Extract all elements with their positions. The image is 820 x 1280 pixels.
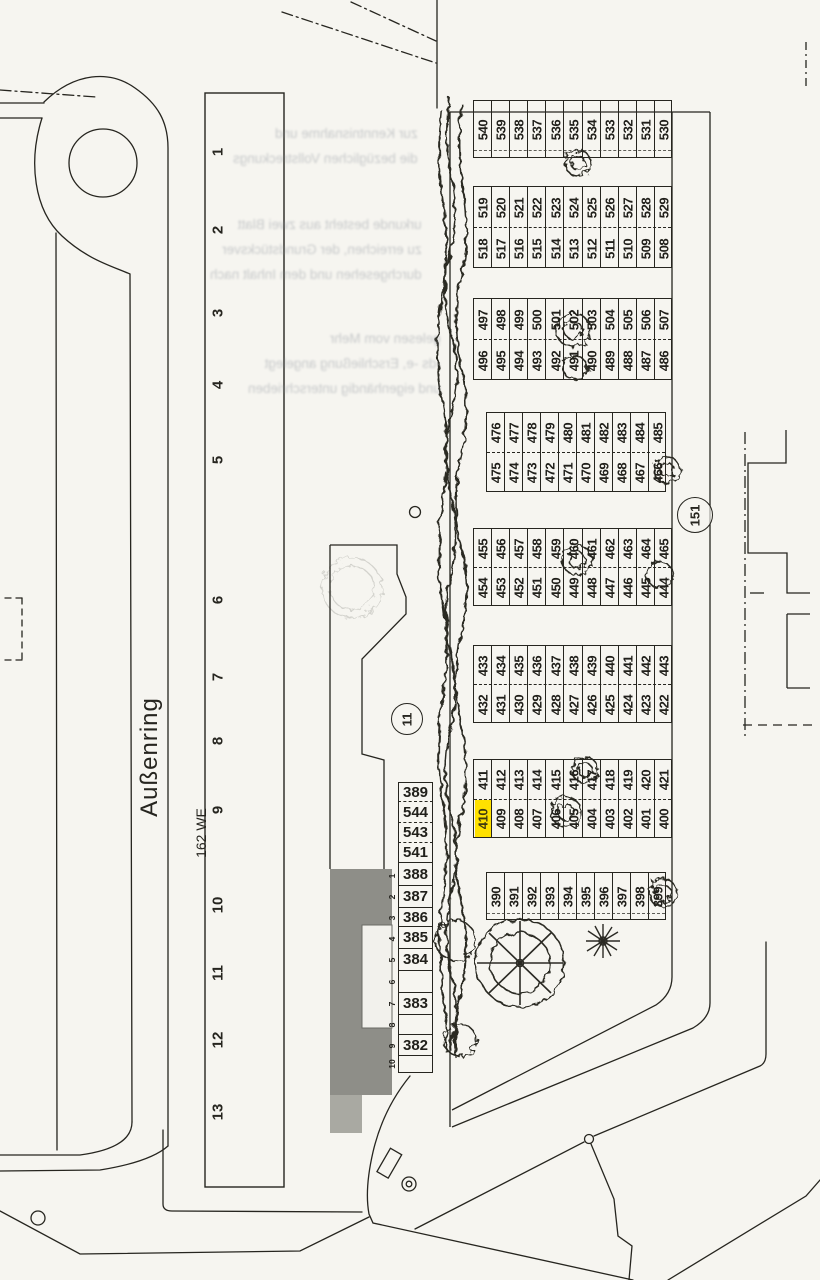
stall-number: 469	[597, 463, 612, 484]
stall-number: 404	[584, 809, 599, 830]
side-stall-number: 386	[403, 909, 428, 926]
stall-number: 464	[639, 538, 654, 559]
stall-number: 449	[566, 577, 581, 598]
stall-number: 473	[525, 463, 540, 484]
side-column-tick: 1	[387, 874, 397, 879]
parking-band: 5195205215225235245255265275285295185175…	[473, 186, 672, 268]
stall-number: 393	[543, 887, 558, 908]
stall-number: 487	[639, 350, 654, 371]
stall-number: 414	[530, 770, 545, 791]
stall-number: 520	[494, 197, 509, 218]
stall-number: 403	[602, 809, 617, 830]
parcel-line-ne	[594, 942, 766, 1136]
stall-number: 485	[651, 423, 666, 444]
parking-band: 390391392393394395396397398399	[486, 872, 666, 920]
stall-number: 528	[639, 197, 654, 218]
stall-number: 479	[543, 423, 558, 444]
stall-number: 398	[633, 887, 648, 908]
stall-front-dashed-line	[474, 150, 671, 151]
side-column-tick: 4	[387, 937, 397, 942]
side-stall-cell: 382	[398, 1035, 433, 1056]
stall-number: 400	[657, 809, 672, 830]
stall-number: 536	[548, 120, 563, 141]
stall-number: 495	[494, 350, 509, 371]
stall-number: 458	[530, 538, 545, 559]
stall-number: 413	[512, 770, 527, 791]
side-stall-cell: 388	[398, 863, 433, 886]
side-stall-cell: 383	[398, 993, 433, 1015]
stall-number: 438	[566, 655, 581, 676]
stall-number: 477	[507, 423, 522, 444]
side-column-tick: 5	[387, 958, 397, 963]
stall-number: 501	[548, 309, 563, 330]
side-column-tick: 10	[387, 1059, 397, 1068]
stall-number: 538	[512, 120, 527, 141]
stall-number: 465	[657, 538, 672, 559]
stall-number: 527	[620, 197, 635, 218]
side-stall-cell: 384	[398, 949, 433, 971]
stall-number: 457	[512, 538, 527, 559]
stall-number: 524	[566, 197, 581, 218]
building-unit-number: 4	[210, 381, 227, 389]
stall-number: 392	[525, 887, 540, 908]
circled-label-151-text: 151	[687, 504, 702, 526]
stall-number: 437	[548, 655, 563, 676]
stall-number: 491	[566, 350, 581, 371]
stall-number: 431	[494, 694, 509, 715]
building-unit-number: 9	[210, 806, 227, 814]
stall-number: 456	[494, 538, 509, 559]
manhole-double-circle-inner	[406, 1181, 412, 1187]
stall-number: 540	[476, 120, 491, 141]
stall-number: 390	[489, 887, 504, 908]
stall-number: 535	[566, 120, 581, 141]
stall-number: 409	[494, 809, 509, 830]
stamp-ghost	[322, 558, 382, 618]
building-unit-number: 10	[210, 897, 227, 914]
stall-number: 512	[584, 238, 599, 259]
stall-number: 421	[657, 770, 672, 791]
stall-number: 406	[548, 809, 563, 830]
stall-facing-line	[487, 452, 665, 453]
stall-number: 427	[566, 694, 581, 715]
stall-number: 460	[566, 538, 581, 559]
stall-number: 513	[566, 238, 581, 259]
side-stall-number: 541	[403, 844, 428, 861]
side-stall-cell: 544	[398, 802, 433, 823]
stall-number: 516	[512, 238, 527, 259]
stall-number: 394	[561, 887, 576, 908]
side-stall-cell-empty	[398, 1015, 433, 1035]
stall-number: 531	[639, 120, 654, 141]
stall-number: 514	[548, 238, 563, 259]
stall-number: 399	[651, 887, 666, 908]
stall-number: 517	[494, 238, 509, 259]
ghost-text-block-1: zur Kenntnisnahme unddie bezüglichen Vol…	[233, 121, 418, 171]
stall-number: 396	[597, 887, 612, 908]
stall-number: 443	[657, 655, 672, 676]
stall-number: 434	[494, 655, 509, 676]
stall-number: 486	[657, 350, 672, 371]
side-stall-cell: 385	[398, 927, 433, 949]
site-plan-scan: Außenring 162 WE 11 151 5405395385375365…	[0, 0, 820, 1280]
boundary-dashdot-2	[282, 12, 436, 63]
road-junction-lower	[0, 1146, 168, 1171]
stall-number: 502	[566, 309, 581, 330]
stall-number: 509	[639, 238, 654, 259]
sign-structure	[377, 1148, 402, 1178]
stall-number: 459	[548, 538, 563, 559]
circled-label-11-text: 11	[400, 712, 415, 726]
boundary-dashdot-topleft	[0, 90, 96, 97]
stall-number: 496	[476, 350, 491, 371]
stall-number: 508	[657, 238, 672, 259]
stall-number: 474	[507, 463, 522, 484]
stall-number: 521	[512, 197, 527, 218]
parking-band: 540539538537536535534533532531530	[473, 100, 672, 158]
side-stall-number: 382	[403, 1037, 428, 1054]
stall-number: 515	[530, 238, 545, 259]
stall-number: 447	[602, 577, 617, 598]
enclosure-bottom	[163, 1130, 362, 1212]
stall-number: 472	[543, 463, 558, 484]
stall-number: 402	[620, 809, 635, 830]
side-stall-number: 385	[403, 929, 428, 946]
stall-facing-line	[474, 339, 671, 340]
stall-number: 395	[579, 887, 594, 908]
building-unit-number: 13	[210, 1104, 227, 1121]
stall-number: 470	[579, 463, 594, 484]
stall-facing-line	[474, 799, 671, 800]
stall-number: 489	[602, 350, 617, 371]
side-column-tick: 6	[387, 980, 397, 985]
building-unit-number: 11	[210, 965, 227, 981]
stall-number: 436	[530, 655, 545, 676]
stall-number: 533	[602, 120, 617, 141]
side-stall-number: 388	[403, 866, 428, 883]
side-stall-cell: 541	[398, 843, 433, 863]
side-stall-number: 387	[403, 888, 428, 905]
building-unit-number: 7	[210, 673, 227, 681]
stall-number: 497	[476, 309, 491, 330]
area-units-label: 162 WE	[193, 808, 209, 858]
stall-number: 418	[602, 770, 617, 791]
vegetation-strip	[438, 98, 467, 1058]
large-tree	[476, 919, 564, 1007]
parking-band: 4554564574584594604614624634644654544534…	[473, 528, 672, 606]
road-junction-upper	[0, 1122, 132, 1155]
stall-number: 417	[584, 770, 599, 791]
side-column-tick: 7	[387, 1002, 397, 1007]
side-stall-number: 383	[403, 995, 428, 1012]
stall-number: 444	[657, 577, 672, 598]
south-boundary	[0, 1211, 369, 1254]
stall-number: 534	[584, 120, 599, 141]
ghost-text-block-2: urkunde besteht aus zwei Blattzu erreich…	[210, 212, 422, 287]
stall-number: 420	[639, 770, 654, 791]
stall-number: 419	[620, 770, 635, 791]
stall-facing-line	[474, 567, 671, 568]
stall-number: 481	[579, 423, 594, 444]
building-unit-number: 1	[210, 148, 227, 156]
stall-number: 500	[530, 309, 545, 330]
street-name-label: Außenring	[136, 697, 164, 817]
stall-number: 525	[584, 197, 599, 218]
small-circle-marker	[410, 507, 421, 518]
stall-number: 416	[566, 770, 581, 791]
stall-number: 519	[476, 197, 491, 218]
stall-number: 440	[602, 655, 617, 676]
stall-number: 439	[584, 655, 599, 676]
stall-number: 441	[620, 655, 635, 676]
stall-number: 461	[584, 538, 599, 559]
stall-number: 475	[489, 463, 504, 484]
parking-band: 4114124134144154164174184194204214104094…	[473, 759, 672, 838]
stall-number: 463	[620, 538, 635, 559]
circled-label-11: 11	[391, 703, 423, 735]
stall-number: 407	[530, 809, 545, 830]
stall-number: 510	[620, 238, 635, 259]
boundary-dashdot-1	[351, 2, 436, 41]
stall-number: 522	[530, 197, 545, 218]
stall-number: 411	[476, 770, 491, 790]
stall-number: 480	[561, 423, 576, 444]
stall-number: 415	[548, 770, 563, 791]
stall-number: 498	[494, 309, 509, 330]
stall-number: 493	[530, 350, 545, 371]
side-stall-cell-empty	[398, 971, 433, 993]
stall-number: 428	[548, 694, 563, 715]
side-stall-cell: 387	[398, 886, 433, 908]
stall-number: 504	[602, 309, 617, 330]
stall-number: 425	[602, 694, 617, 715]
side-stall-cell: 543	[398, 823, 433, 843]
stall-number: 412	[494, 770, 509, 791]
stall-number: 506	[639, 309, 654, 330]
stall-number: 405	[566, 809, 581, 830]
stall-number: 451	[530, 577, 545, 598]
building-unit-number: 12	[210, 1032, 227, 1049]
building-unit-number: 5	[210, 456, 227, 464]
circled-label-151: 151	[677, 497, 713, 533]
stall-number: 408	[512, 809, 527, 830]
parcel-line-sw	[415, 1142, 584, 1229]
side-stall-number: 544	[403, 804, 428, 821]
lawn-boundary-line	[56, 233, 57, 1150]
stall-number: 446	[620, 577, 635, 598]
stall-number: 401	[639, 809, 654, 830]
stall-number: 478	[525, 423, 540, 444]
stall-number: 391	[507, 887, 522, 908]
highlighted-stall-number: 410	[476, 809, 491, 830]
stall-number: 422	[657, 694, 672, 715]
turning-circle-outer-west	[35, 118, 132, 1122]
stall-number: 424	[620, 694, 635, 715]
neighbour-structures-east	[743, 42, 812, 740]
stall-number: 423	[639, 694, 654, 715]
stall-number: 426	[584, 694, 599, 715]
stall-number: 435	[512, 655, 527, 676]
stall-number: 526	[602, 197, 617, 218]
stall-number: 468	[615, 463, 630, 484]
parking-band: 4974984995005015025035045055065074964954…	[473, 298, 672, 380]
stall-number: 484	[633, 423, 648, 444]
parking-band: 4334344354364374384394404414424434324314…	[473, 645, 672, 723]
dashed-fragment-west	[0, 598, 22, 660]
parcel-line-se-corner	[668, 1180, 820, 1280]
side-stall-number: 543	[403, 824, 428, 841]
parking-side-column: 389544543541388387386385384383382	[398, 782, 433, 1073]
small-tree-starburst	[586, 924, 620, 958]
road-linework	[0, 0, 820, 1280]
stall-number: 537	[530, 120, 545, 141]
plan-linework	[0, 0, 820, 1280]
stall-number: 505	[620, 309, 635, 330]
stall-number: 471	[561, 463, 576, 484]
stall-number: 448	[584, 577, 599, 598]
building-unit-number: 6	[210, 596, 227, 604]
stall-number: 432	[476, 694, 491, 715]
side-column-tick: 2	[387, 895, 397, 900]
stall-number: 397	[615, 887, 630, 908]
stall-number: 482	[597, 423, 612, 444]
stall-number: 530	[657, 120, 672, 141]
side-column-tick: 8	[387, 1023, 397, 1028]
gray-building-tail	[330, 1095, 362, 1133]
stall-number: 488	[620, 350, 635, 371]
stall-number: 511	[602, 239, 617, 259]
stall-number: 518	[476, 238, 491, 259]
building-unit-number: 8	[210, 737, 227, 745]
stall-number: 492	[548, 350, 563, 371]
stall-number: 455	[476, 538, 491, 559]
ghost-text-block-3: gelesen vom Mehr-ds -e, Erschließung ang…	[248, 326, 441, 401]
stall-number: 467	[633, 463, 648, 484]
side-column-tick: 3	[387, 916, 397, 921]
side-stall-cell: 389	[398, 782, 433, 802]
stall-number: 466	[651, 463, 666, 484]
stall-number: 503	[584, 309, 599, 330]
stall-number: 490	[584, 350, 599, 371]
stall-facing-line	[474, 227, 671, 228]
stall-facing-line	[474, 684, 671, 685]
stall-number: 539	[494, 120, 509, 141]
turning-circle-island	[69, 129, 137, 197]
side-stall-number: 389	[403, 784, 428, 801]
stall-number: 499	[512, 309, 527, 330]
stall-number: 433	[476, 655, 491, 676]
stall-number: 430	[512, 694, 527, 715]
stall-number: 523	[548, 197, 563, 218]
stall-number: 452	[512, 577, 527, 598]
stall-number: 454	[476, 577, 491, 598]
stall-number: 429	[530, 694, 545, 715]
side-column-tick: 9	[387, 1044, 397, 1049]
building-unit-number: 3	[210, 309, 227, 317]
stall-number: 476	[489, 423, 504, 444]
stall-number: 442	[639, 655, 654, 676]
stall-number: 483	[615, 423, 630, 444]
parking-band: 4764774784794804814824834844854754744734…	[486, 412, 666, 492]
side-stall-number: 384	[403, 951, 428, 968]
stall-number: 445	[639, 577, 654, 598]
parcel-line-south	[591, 1144, 632, 1280]
boundary-node-circle	[585, 1135, 594, 1144]
manhole-double-circle-outer	[402, 1177, 416, 1191]
stall-number: 462	[602, 538, 617, 559]
stall-number: 507	[657, 309, 672, 330]
side-stall-cell-empty	[398, 1056, 433, 1073]
stall-number: 529	[657, 197, 672, 218]
side-stall-cell: 386	[398, 908, 433, 927]
stall-number: 453	[494, 577, 509, 598]
stall-number: 532	[620, 120, 635, 141]
stall-number: 494	[512, 350, 527, 371]
stall-front-dashed-line	[487, 913, 665, 914]
manhole-circle-sw	[31, 1211, 45, 1225]
stall-number: 450	[548, 577, 563, 598]
